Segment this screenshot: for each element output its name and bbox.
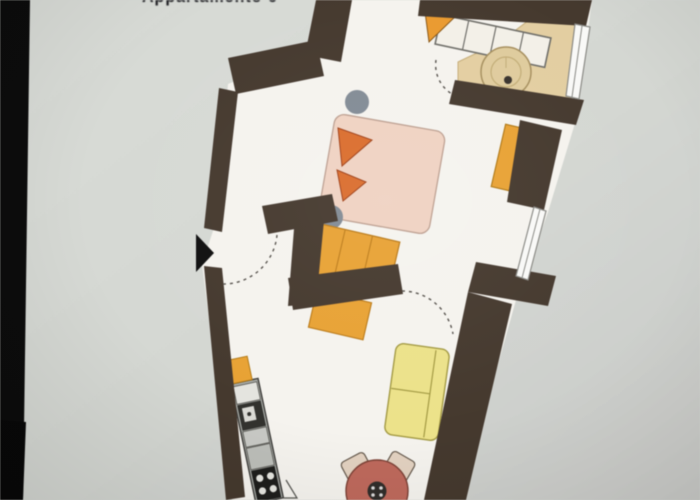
floorplan-photo: Appartamento 6 [0, 0, 700, 500]
bedside-stool [345, 90, 369, 114]
photo-edge-bar-shadow [0, 420, 26, 500]
floorplan-drawing [0, 0, 700, 500]
